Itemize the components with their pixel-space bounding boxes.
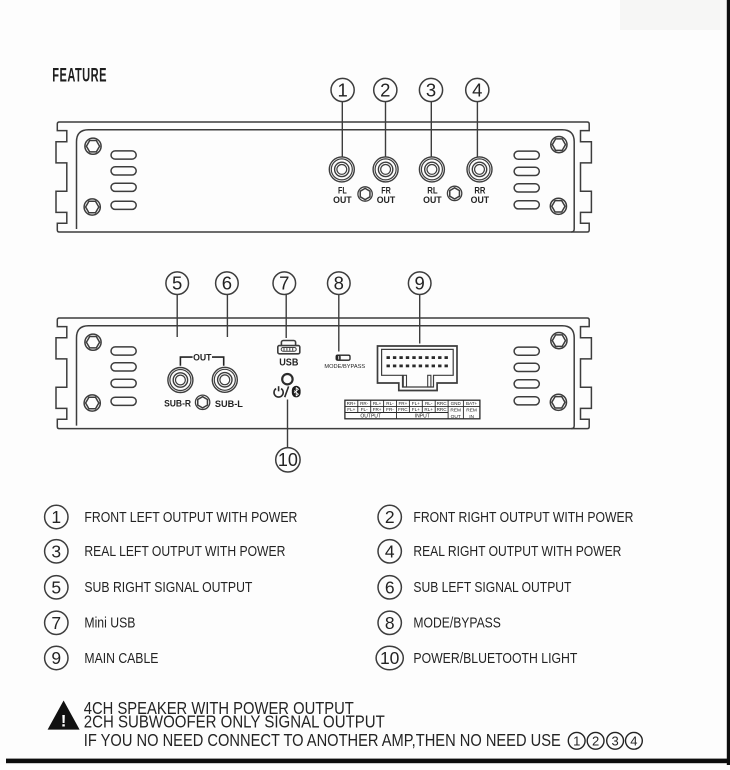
- svg-text:GND: GND: [451, 401, 462, 406]
- svg-text:FL-: FL-: [361, 407, 368, 412]
- svg-text:5: 5: [51, 578, 61, 598]
- svg-text:FL+: FL+: [412, 407, 420, 412]
- svg-text:1: 1: [51, 507, 61, 527]
- svg-text:RR+: RR+: [347, 401, 357, 406]
- svg-text:IF YOU NO NEED CONNECT TO ANOT: IF YOU NO NEED CONNECT TO ANOTHER AMP,TH…: [84, 730, 561, 750]
- svg-text:9: 9: [51, 648, 61, 668]
- svg-text:FR-: FR-: [386, 407, 394, 412]
- svg-text:BAT+: BAT+: [466, 401, 478, 406]
- svg-text:7: 7: [51, 613, 61, 633]
- svg-text:SUB RIGHT SIGNAL OUTPUT: SUB RIGHT SIGNAL OUTPUT: [84, 579, 252, 596]
- svg-text:FRC: FRC: [398, 407, 408, 412]
- svg-text:INPUT: INPUT: [415, 414, 430, 420]
- svg-text:5: 5: [172, 273, 182, 294]
- svg-text:MODE/BYPASS: MODE/BYPASS: [413, 615, 501, 632]
- svg-text:FL+: FL+: [412, 401, 420, 406]
- svg-text:IN: IN: [469, 414, 474, 420]
- svg-text:3: 3: [426, 80, 436, 101]
- svg-text:SUB LEFT SIGNAL OUTPUT: SUB LEFT SIGNAL OUTPUT: [413, 579, 571, 596]
- svg-text:1: 1: [573, 733, 580, 748]
- svg-text:REM: REM: [450, 408, 461, 414]
- svg-text:FEATURE: FEATURE: [52, 66, 107, 87]
- svg-text:RL+: RL+: [373, 401, 382, 406]
- svg-text:8: 8: [385, 613, 395, 633]
- svg-text:OUT: OUT: [423, 195, 442, 206]
- svg-text:POWER/BLUETOOTH LIGHT: POWER/BLUETOOTH LIGHT: [413, 650, 577, 667]
- svg-text:8: 8: [334, 273, 344, 294]
- svg-text:9: 9: [415, 273, 425, 294]
- svg-text:RRC: RRC: [437, 401, 448, 406]
- svg-text:REM: REM: [466, 408, 477, 414]
- svg-text:MODE/BYPASS: MODE/BYPASS: [324, 364, 365, 370]
- svg-text:3: 3: [611, 733, 618, 748]
- svg-text:OUTPUT: OUTPUT: [360, 414, 381, 420]
- svg-text:OUT: OUT: [193, 352, 212, 363]
- svg-text:4: 4: [630, 733, 637, 748]
- svg-text:MAIN CABLE: MAIN CABLE: [84, 650, 158, 667]
- svg-text:2CH SUBWOOFER ONLY SIGNAL OUTP: 2CH SUBWOOFER ONLY SIGNAL OUTPUT: [84, 712, 385, 732]
- svg-text:OUT: OUT: [333, 195, 352, 206]
- svg-text:RL-: RL-: [425, 401, 433, 406]
- svg-text:7: 7: [279, 273, 289, 294]
- svg-text:RL-: RL-: [386, 401, 394, 406]
- svg-text:!: !: [61, 712, 67, 731]
- svg-text:6: 6: [222, 273, 232, 294]
- svg-text:REAL RIGHT OUTPUT WITH POWER: REAL RIGHT OUTPUT WITH POWER: [413, 543, 621, 560]
- svg-text:2: 2: [592, 733, 599, 748]
- svg-text:6: 6: [385, 578, 395, 598]
- svg-text:Mini USB: Mini USB: [84, 615, 135, 632]
- svg-text:SUB-R: SUB-R: [164, 398, 191, 409]
- svg-text:OUT: OUT: [471, 195, 490, 206]
- svg-text:OUT: OUT: [451, 414, 461, 420]
- svg-text:RL+: RL+: [424, 407, 433, 412]
- svg-text:FR+: FR+: [373, 407, 382, 412]
- svg-text:FRONT LEFT OUTPUT WITH POWER: FRONT LEFT OUTPUT WITH POWER: [84, 509, 297, 526]
- svg-text:4: 4: [472, 80, 482, 101]
- svg-text:2: 2: [380, 80, 390, 101]
- svg-text:10: 10: [380, 648, 400, 668]
- svg-text:3: 3: [51, 542, 61, 562]
- svg-text:USB: USB: [279, 358, 298, 369]
- svg-text:RR-: RR-: [360, 401, 369, 406]
- svg-text:FL+: FL+: [347, 407, 355, 412]
- svg-text:2: 2: [385, 507, 395, 527]
- svg-text:FR+: FR+: [398, 401, 407, 406]
- svg-text:SUB-L: SUB-L: [215, 399, 243, 410]
- svg-text:10: 10: [278, 450, 298, 470]
- svg-text:REAL LEFT OUTPUT WITH POWER: REAL LEFT OUTPUT WITH POWER: [84, 543, 285, 560]
- svg-text:OUT: OUT: [377, 195, 396, 206]
- svg-text:4: 4: [385, 542, 395, 562]
- svg-text:1: 1: [337, 80, 347, 101]
- svg-text:FRONT RIGHT OUTPUT WITH POWER: FRONT RIGHT OUTPUT WITH POWER: [413, 509, 633, 526]
- svg-text:RRC: RRC: [437, 407, 448, 412]
